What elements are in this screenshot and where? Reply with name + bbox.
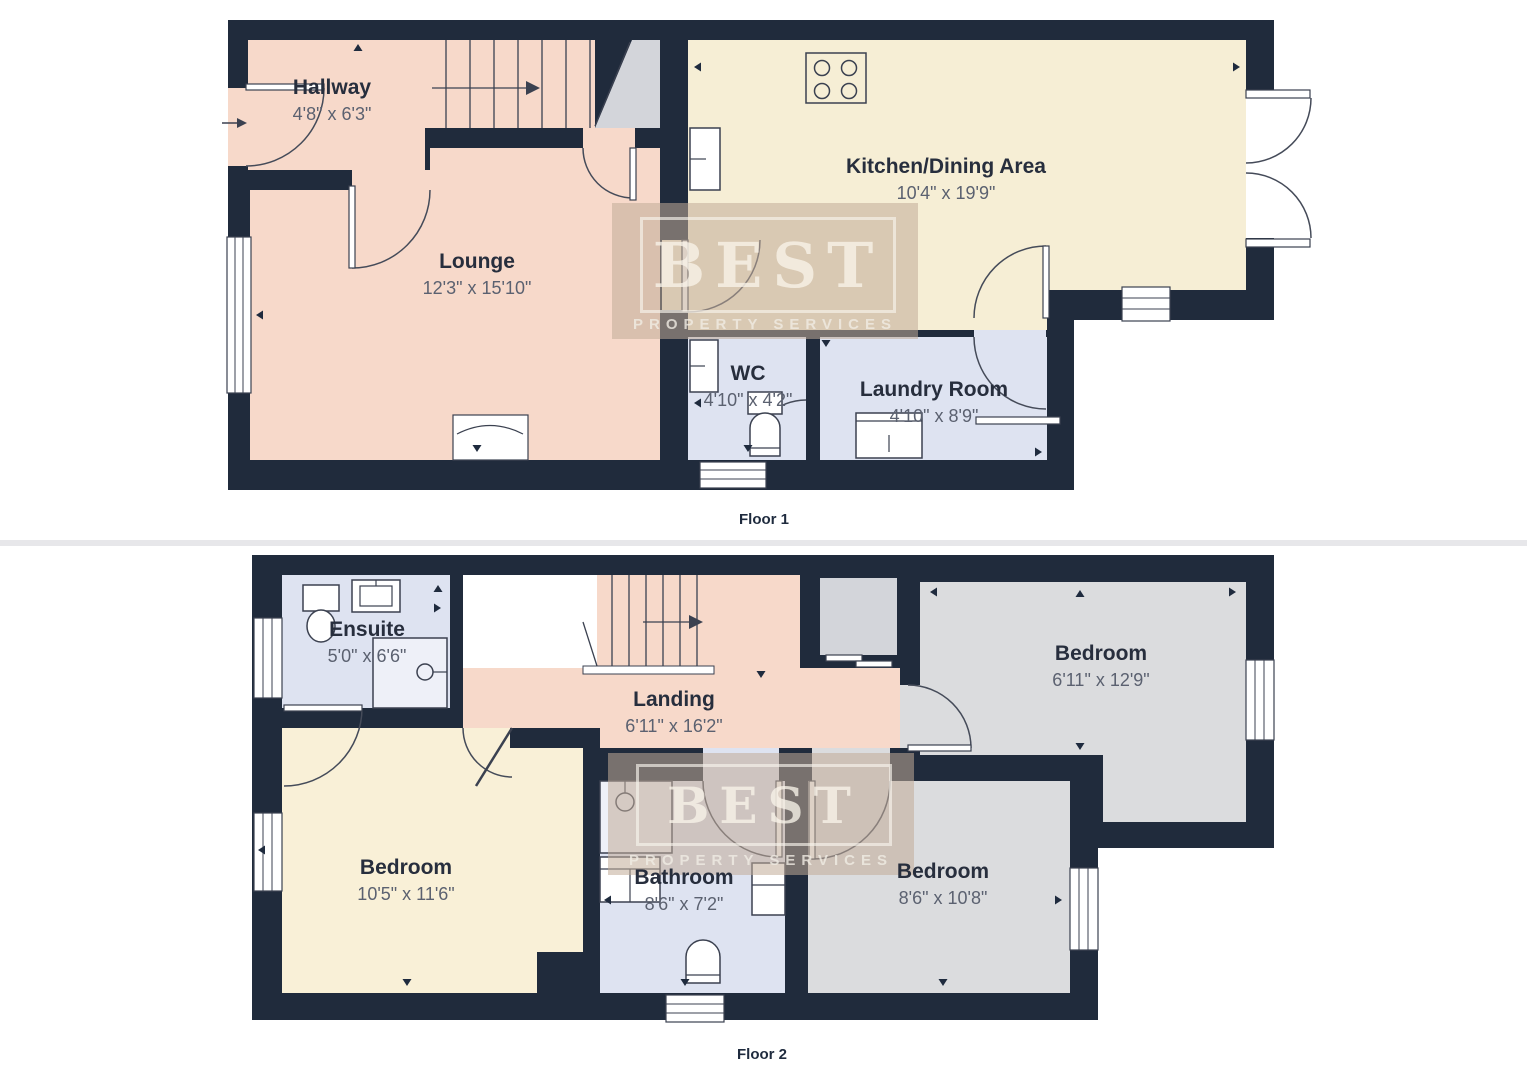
room-label-ensuite: Ensuite 5'0" x 6'6"	[328, 616, 407, 670]
patio-door-frame	[1246, 239, 1310, 247]
room-label-wc: WC 4'10" x 4'2"	[704, 360, 793, 414]
room-label-landing: Landing 6'11" x 16'2"	[625, 686, 722, 740]
room-label-lounge: Lounge 12'3" x 15'10"	[423, 248, 532, 302]
bedroom-bl-window	[254, 813, 282, 891]
kitchen-sink-icon	[690, 128, 720, 190]
room-label-laundry: Laundry Room 4'10" x 8'9"	[860, 376, 1008, 430]
room-label-bedroom-tr: Bedroom 6'11" x 12'9"	[1052, 640, 1149, 694]
floor1-label: Floor 1	[739, 511, 789, 528]
floorplan-page: BEST PROPERTY SERVICES BEST PROPERTY SER…	[0, 0, 1527, 1080]
stair-edge	[583, 666, 714, 674]
patio-door-arc	[1246, 98, 1311, 163]
room-label-bedroom-br: Bedroom 8'6" x 10'8"	[897, 858, 989, 912]
watermark-logo: BEST PROPERTY SERVICES	[608, 753, 914, 875]
stove-icon	[806, 53, 866, 103]
lounge-bay-window	[453, 415, 528, 460]
watermark-frame: BEST	[636, 764, 892, 846]
room-label-hallway: Hallway 4'8" x 6'3"	[293, 74, 372, 128]
bedroom-tr-window	[1246, 660, 1274, 740]
room-label-bedroom-bl: Bedroom 10'5" x 11'6"	[357, 854, 454, 908]
watermark-frame: BEST	[640, 217, 896, 313]
stairwell-void	[463, 575, 597, 668]
watermark-title: BEST	[653, 229, 884, 302]
section-divider	[0, 540, 1527, 546]
patio-door-arc	[1246, 173, 1311, 238]
watermark-logo: BEST PROPERTY SERVICES	[612, 203, 918, 339]
watermark-title: BEST	[667, 776, 861, 835]
watermark-subtitle: PROPERTY SERVICES	[612, 316, 918, 333]
ensuite-sink-icon	[352, 580, 400, 612]
room-label-bathroom: Bathroom 8'6" x 7'2"	[634, 864, 733, 918]
closet-floor	[820, 578, 897, 655]
kitchen-window	[1122, 287, 1170, 321]
patio-door-frame	[1246, 90, 1310, 98]
floor2-label: Floor 2	[737, 1046, 787, 1063]
bathroom-window	[666, 995, 724, 1022]
lounge-window	[227, 237, 251, 393]
landing-floor	[714, 575, 800, 748]
bedroom-br-window	[1070, 868, 1098, 950]
ensuite-window	[254, 618, 282, 698]
wc-window	[700, 462, 766, 488]
bathroom-toilet-icon	[686, 940, 720, 983]
room-label-kitchen: Kitchen/Dining Area 10'4" x 19'9"	[846, 153, 1046, 207]
